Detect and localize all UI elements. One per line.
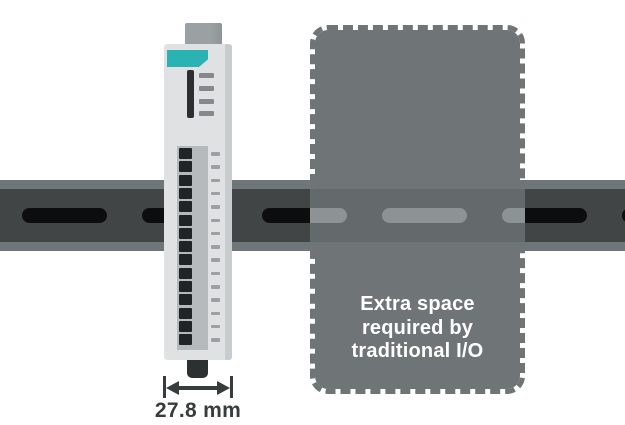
extra-space-label-line1: Extra space — [315, 293, 520, 317]
extra-space-label-line3: traditional I/O — [315, 340, 520, 364]
led-bar — [199, 111, 214, 116]
terminal-label-dash — [211, 165, 220, 169]
terminal-screw — [179, 161, 192, 172]
terminal-label-dash — [211, 312, 220, 316]
terminal-screw — [179, 334, 192, 345]
terminal-screw — [179, 308, 192, 319]
rail-slot-ghost — [310, 208, 347, 223]
terminal-screw — [179, 268, 192, 279]
terminal-screw — [179, 148, 192, 159]
io-module — [164, 44, 232, 360]
terminal-screw — [179, 228, 192, 239]
extra-space-block: Extra space required by traditional I/O — [310, 25, 525, 394]
extra-space-label: Extra space required by traditional I/O — [315, 293, 520, 364]
terminal-labels — [211, 152, 220, 352]
terminal-label-dash — [211, 205, 220, 209]
terminal-label-dash — [211, 179, 220, 183]
din-rail-ghost — [310, 189, 525, 242]
width-dimension-label: 27.8 mm — [136, 399, 260, 423]
terminal-screw — [179, 188, 192, 199]
mounting-tab — [185, 23, 222, 44]
module-side-shade — [225, 44, 232, 360]
dimension-arrowhead-left — [166, 381, 179, 395]
extra-space-label-line2: required by — [315, 317, 520, 341]
led-bar — [199, 86, 214, 91]
terminal-screw — [179, 321, 192, 332]
led-indicators — [199, 73, 214, 118]
terminal-block — [177, 146, 208, 350]
terminal-screw — [179, 175, 192, 186]
terminal-screw — [179, 215, 192, 226]
terminal-label-dash — [211, 232, 220, 236]
terminal-label-dash — [211, 298, 220, 302]
terminal-label-dash — [211, 245, 220, 249]
dimension-tick-right — [230, 376, 233, 398]
terminal-label-dash — [211, 152, 220, 156]
terminal-screw — [179, 201, 192, 212]
terminal-screw — [179, 281, 192, 292]
rail-slot-ghost — [502, 208, 525, 223]
terminal-label-dash — [211, 272, 220, 276]
brand-panel — [167, 50, 208, 67]
dimension-arrowhead-right — [217, 381, 230, 395]
terminal-screw — [179, 254, 192, 265]
led-bar — [199, 99, 214, 104]
terminal-label-dash — [211, 338, 220, 342]
terminal-label-dash — [211, 192, 220, 196]
din-release-clip — [187, 360, 208, 378]
terminal-label-dash — [211, 258, 220, 262]
space-comparison-diagram: Extra space required by traditional I/O … — [0, 0, 625, 425]
terminal-label-dash — [211, 285, 220, 289]
terminal-screw — [179, 241, 192, 252]
terminal-label-dash — [211, 325, 220, 329]
rail-slot — [22, 208, 107, 223]
led-bar — [199, 73, 214, 78]
display-slot — [187, 70, 194, 118]
rail-slot-ghost — [382, 208, 467, 223]
terminal-label-dash — [211, 219, 220, 223]
terminal-screw — [179, 294, 192, 305]
